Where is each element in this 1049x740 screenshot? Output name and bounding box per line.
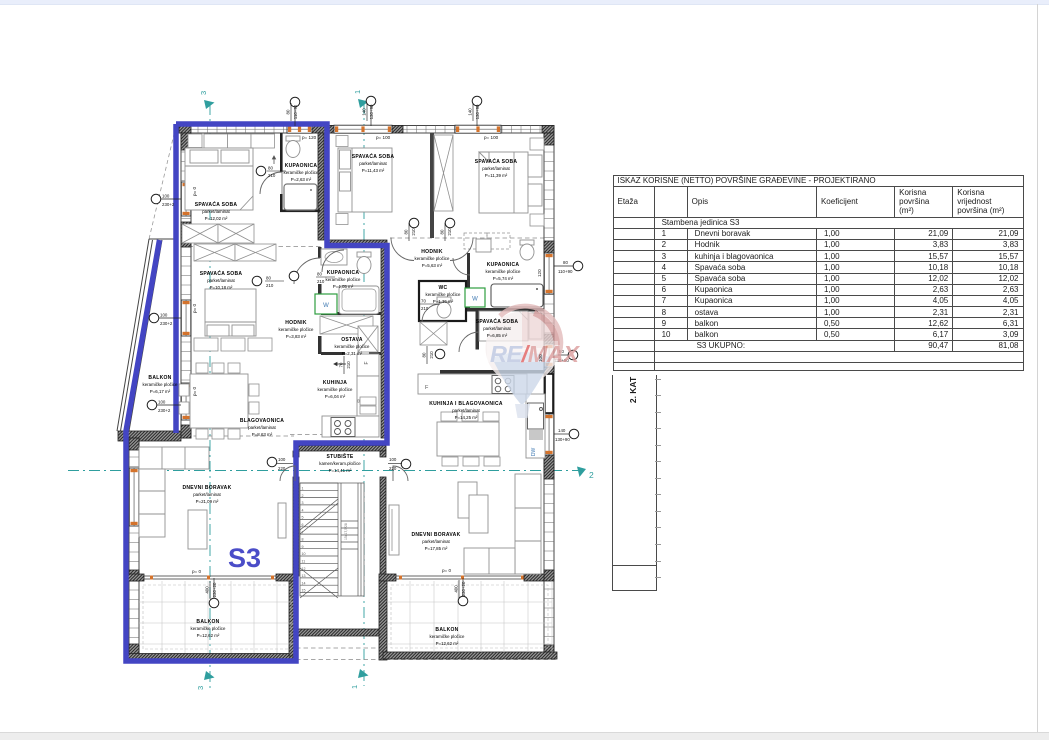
svg-text:210: 210 [447,228,452,236]
svg-text:220: 220 [278,466,286,471]
svg-text:P=17,85 m²: P=17,85 m² [425,546,448,551]
svg-text:P=5,63 m²: P=5,63 m² [422,263,443,268]
svg-text:2: 2 [302,494,304,498]
svg-text:OSTAVA: OSTAVA [341,337,363,343]
svg-text:SPAVAĆA SOBA: SPAVAĆA SOBA [475,157,518,165]
svg-text:p= 0: p= 0 [442,568,452,573]
svg-text:parket/laminat: parket/laminat [202,209,230,214]
svg-text:230+2: 230+2 [160,321,173,326]
svg-text:80: 80 [440,229,445,234]
svg-text:BLAGOVAONICA: BLAGOVAONICA [240,418,284,424]
svg-text:110+90: 110+90 [293,104,298,119]
svg-text:HODNIK: HODNIK [285,320,307,326]
svg-text:3: 3 [196,686,205,690]
svg-text:70: 70 [421,299,426,304]
svg-text:80: 80 [563,260,568,265]
svg-text:12: 12 [302,567,306,571]
svg-text:400: 400 [205,586,210,594]
svg-text:100: 100 [389,457,397,462]
svg-text:140: 140 [558,428,566,433]
svg-text:KUPAONICA: KUPAONICA [285,163,318,169]
svg-text:220: 220 [389,466,397,471]
svg-text:kamen/keram.pločice: kamen/keram.pločice [319,461,361,466]
svg-text:230+2: 230+2 [158,408,171,413]
svg-text:SPAVAĆA SOBA: SPAVAĆA SOBA [200,269,243,277]
svg-text:P=6,85 m²: P=6,85 m² [487,333,508,338]
svg-text:KUPAONICA: KUPAONICA [327,270,360,276]
svg-text:P=11,43 m²: P=11,43 m² [362,168,385,173]
svg-text:keramičke pločice: keramičke pločice [326,277,361,282]
svg-text:230+20: 230+20 [212,582,217,597]
svg-text:P=2,31 m²: P=2,31 m² [342,351,363,356]
svg-text:STUBIŠTE: STUBIŠTE [326,452,353,460]
svg-text:P=8,63 m²: P=8,63 m² [252,432,273,437]
svg-text:keramičke pločice: keramičke pločice [318,387,353,392]
svg-text:keramičke pločice: keramičke pločice [279,327,314,332]
svg-text:130+90: 130+90 [369,104,374,119]
svg-text:100: 100 [158,400,166,405]
svg-text:6: 6 [302,523,304,527]
svg-text:1: 1 [302,487,304,491]
svg-text:P=2,63 m²: P=2,63 m² [291,177,312,182]
svg-text:P=12,62 m²: P=12,62 m² [436,641,459,646]
svg-text:keramičke pločice: keramičke pločice [191,626,226,631]
svg-text:11: 11 [302,560,306,564]
svg-text:p= 0: p= 0 [192,386,197,396]
svg-text:400: 400 [454,585,459,593]
svg-text:15x17,5/28: 15x17,5/28 [344,523,348,540]
svg-text:P=10,18 m²: P=10,18 m² [210,285,233,290]
svg-text:HODNIK: HODNIK [421,249,443,255]
svg-text:W: W [472,297,478,303]
svg-text:3: 3 [302,501,304,505]
svg-text:S3: S3 [228,543,261,573]
svg-text:3: 3 [199,91,208,95]
svg-text:120: 120 [537,269,542,277]
svg-text:parket/laminat: parket/laminat [482,166,510,171]
svg-text:P=12,62 m²: P=12,62 m² [197,633,220,638]
svg-text:keramičke pločice: keramičke pločice [415,256,450,261]
svg-text:DNEVNI BORAVAK: DNEVNI BORAVAK [182,485,231,491]
svg-text:80: 80 [268,166,273,171]
svg-text:210: 210 [346,361,351,369]
svg-text:keramičke pločice: keramičke pločice [284,170,319,175]
svg-text:7: 7 [302,530,304,534]
svg-text:130+90: 130+90 [475,104,480,119]
svg-text:210: 210 [421,306,429,311]
svg-text:parket/laminat: parket/laminat [452,408,480,413]
svg-text:p= 120: p= 120 [302,135,317,140]
svg-text:p= 0: p= 0 [192,303,197,313]
svg-text:BALKON: BALKON [196,619,219,625]
svg-text:P=5,74 m²: P=5,74 m² [493,276,514,281]
svg-text:KUPAONICA: KUPAONICA [487,262,520,268]
svg-text:WC: WC [439,285,448,291]
svg-text:140: 140 [468,108,473,116]
svg-text:230+20: 230+20 [461,581,466,596]
svg-text:KUHINJA I BLAGOVAONICA: KUHINJA I BLAGOVAONICA [429,401,503,407]
svg-text:parket/laminat: parket/laminat [193,492,221,497]
svg-text:10: 10 [302,552,306,556]
svg-text:70: 70 [339,362,344,367]
svg-text:BALKON: BALKON [435,627,458,633]
svg-text:2: 2 [589,470,594,480]
svg-text:parket/laminat: parket/laminat [422,539,450,544]
svg-text:210: 210 [268,173,276,178]
svg-text:P=6,17 m²: P=6,17 m² [150,389,171,394]
svg-text:W: W [323,303,329,309]
svg-text:130+90: 130+90 [555,437,570,442]
svg-text:P=14,25 m²: P=14,25 m² [455,415,478,420]
svg-text:P=6,04 m²: P=6,04 m² [325,394,346,399]
svg-text:210: 210 [411,228,416,236]
svg-text:110+90: 110+90 [558,269,573,274]
svg-text:P=12,02 m²: P=12,02 m² [205,216,228,221]
svg-text:230+2: 230+2 [162,202,175,207]
svg-text:5: 5 [302,516,304,520]
svg-text:SPAVAĆA SOBA: SPAVAĆA SOBA [195,200,238,208]
svg-text:keramičke pločice: keramičke pločice [430,634,465,639]
svg-text:P=11,39 m²: P=11,39 m² [485,173,508,178]
svg-text:14: 14 [302,581,306,585]
svg-text:p= 100: p= 100 [484,135,499,140]
svg-text:100: 100 [160,313,168,318]
svg-text:1: 1 [350,685,359,689]
svg-text:keramičke pločice: keramičke pločice [143,382,178,387]
svg-text:p= 100: p= 100 [376,135,391,140]
svg-text:8: 8 [302,538,304,542]
svg-text:parket/laminat: parket/laminat [207,278,235,283]
svg-text:F: F [364,361,370,364]
svg-text:p= 0: p= 0 [192,569,202,574]
svg-text:13: 13 [302,574,306,578]
svg-text:100: 100 [538,354,543,362]
svg-text:P=14,41 m²: P=14,41 m² [329,468,352,473]
svg-text:80: 80 [286,109,291,114]
svg-text:DNEVNI BORAVAK: DNEVNI BORAVAK [411,532,460,538]
svg-text:P=4,05 m²: P=4,05 m² [333,284,354,289]
svg-text:9: 9 [302,545,304,549]
svg-text:210: 210 [266,283,274,288]
svg-text:RE/MAX: RE/MAX [490,341,580,367]
svg-text:80: 80 [404,229,409,234]
svg-text:SPAVAĆA SOBA: SPAVAĆA SOBA [476,317,519,325]
svg-text:keramičke pločice: keramičke pločice [486,269,521,274]
svg-text:P=3,83 m²: P=3,83 m² [286,334,307,339]
svg-text:4: 4 [302,508,304,512]
svg-text:100: 100 [162,194,170,199]
svg-text:keramičke pločice: keramičke pločice [426,292,461,297]
svg-text:210: 210 [317,279,325,284]
svg-text:140: 140 [362,108,367,116]
svg-text:P=1,36 m²: P=1,36 m² [433,299,454,304]
svg-text:keramičke pločice: keramičke pločice [335,344,370,349]
svg-text:parket/laminat: parket/laminat [248,425,276,430]
svg-text:BALKON: BALKON [148,375,171,381]
svg-text:DW: DW [531,448,537,457]
svg-text:SPAVAĆA SOBA: SPAVAĆA SOBA [352,152,395,160]
svg-text:80: 80 [422,352,427,357]
svg-text:KUHINJA: KUHINJA [323,380,347,386]
svg-text:80: 80 [266,276,271,281]
svg-text:p= 0: p= 0 [192,186,197,196]
svg-text:15: 15 [302,589,306,593]
svg-text:1: 1 [353,90,362,94]
svg-text:100: 100 [278,457,286,462]
svg-text:210: 210 [429,351,434,359]
svg-text:P=21,09 m²: P=21,09 m² [196,499,219,504]
svg-text:80: 80 [317,272,322,277]
svg-text:parket/laminat: parket/laminat [483,326,511,331]
svg-text:parket/laminat: parket/laminat [359,161,387,166]
